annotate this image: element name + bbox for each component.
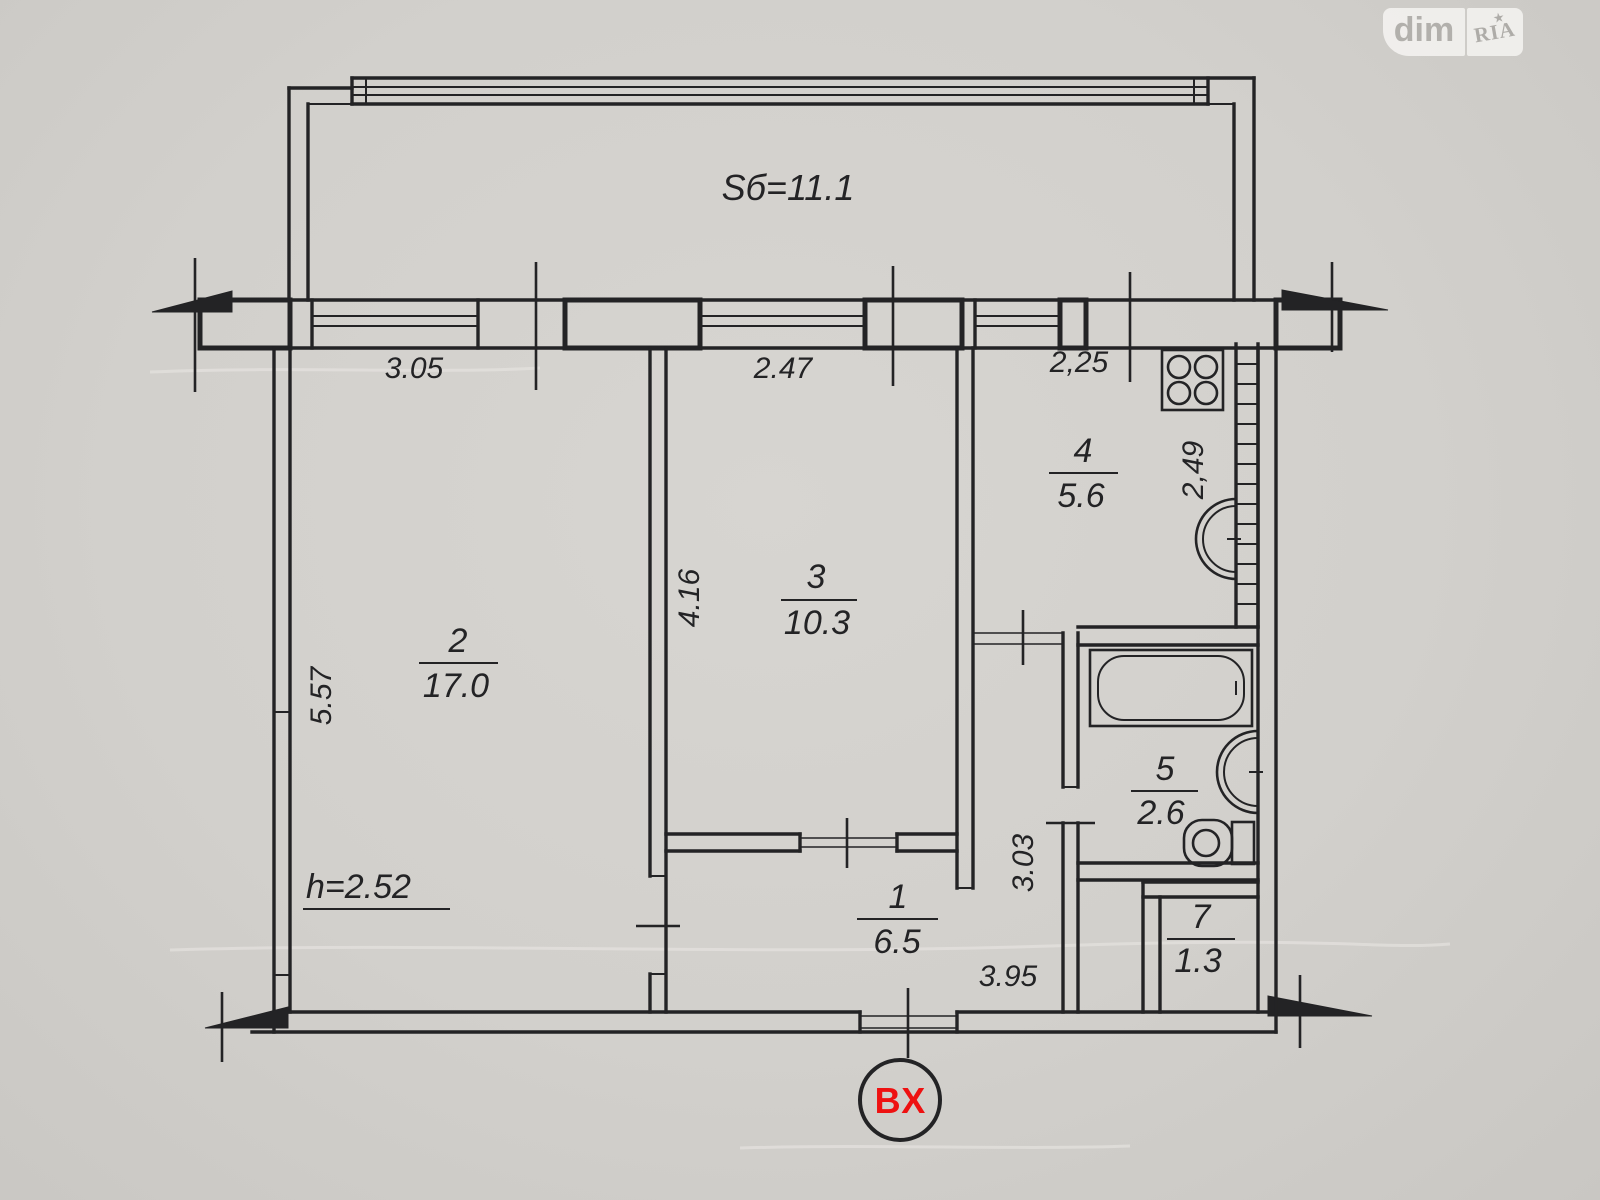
- section-arrow-bottom-left: [205, 1007, 288, 1028]
- wall-living-hall: [636, 348, 680, 1012]
- toilet-icon: [1184, 820, 1254, 866]
- room-living: 2 17.0 5.57 h=2.52: [304, 622, 497, 909]
- room-storage-area: 1.3: [1174, 942, 1221, 980]
- ceiling-height-label: h=2.52: [306, 868, 411, 906]
- washbasin-icon: [1217, 731, 1262, 813]
- dim-top-middle: 2.47: [753, 352, 814, 385]
- room-bedroom-number: 3: [807, 558, 826, 596]
- room-storage: 7 1.3: [1143, 882, 1258, 1012]
- entrance-mark: ВХ: [860, 1060, 940, 1140]
- bathtub-icon: [1090, 650, 1252, 726]
- kitchen-sink-icon: [1196, 499, 1240, 579]
- wall-pier: [1060, 300, 1086, 348]
- watermark-ria-text: RIA: [1472, 16, 1517, 48]
- room-bathroom: 5 2.6: [1046, 627, 1262, 1012]
- floor-plan-photo: Sб=11.1: [0, 0, 1600, 1200]
- room-bathroom-area: 2.6: [1136, 794, 1184, 832]
- dim-ria-watermark: dim ★ RIA: [1383, 8, 1523, 56]
- section-arrow-bottom-right: [1268, 996, 1372, 1016]
- entrance-label: ВХ: [875, 1080, 928, 1121]
- dim-bottom: 3.95: [979, 960, 1038, 993]
- dim-top-right: 2,25: [1049, 346, 1109, 379]
- room-hallway-area: 6.5: [873, 923, 920, 961]
- kitchen-doorway: [973, 610, 1063, 665]
- dim-hall-vertical: 3.03: [1007, 833, 1040, 892]
- wall-pier: [865, 300, 962, 348]
- section-arrow-top-right: [1282, 290, 1388, 310]
- window-living-room: [312, 300, 478, 348]
- floor-plan-drawing: Sб=11.1: [0, 0, 1600, 1200]
- dim-left-wall: 5.57: [305, 665, 338, 725]
- dim-top-left: 3.05: [385, 352, 444, 385]
- dim-kitchen-right: 2,49: [1177, 440, 1210, 500]
- stove-icon: [1162, 350, 1223, 410]
- room-bathroom-number: 5: [1156, 750, 1175, 788]
- room-storage-number: 7: [1192, 898, 1212, 936]
- room-hallway: 1 6.5 3.95 3.03: [858, 833, 1040, 993]
- watermark-dim-text: dim: [1394, 13, 1454, 51]
- watermark-ria: ★ RIA: [1467, 8, 1523, 56]
- room-living-number: 2: [448, 622, 468, 660]
- dim-bedroom-left: 4.16: [673, 568, 706, 627]
- room-hallway-number: 1: [889, 878, 908, 916]
- balcony-left-wall: [289, 88, 352, 300]
- window-kitchen: [975, 300, 1060, 348]
- window-bedroom: [700, 300, 865, 348]
- section-arrow-top-left: [152, 291, 232, 312]
- watermark-dim: dim: [1383, 8, 1465, 56]
- room-kitchen-area: 5.6: [1057, 477, 1104, 515]
- ventilation-shaft: [1236, 344, 1258, 627]
- room-kitchen-number: 4: [1074, 432, 1093, 470]
- room-kitchen: 4 5.6 2,49: [973, 344, 1258, 665]
- balcony-railing: [352, 78, 1254, 104]
- wall-pier: [565, 300, 700, 348]
- room-bedroom-area: 10.3: [784, 604, 850, 642]
- bedroom-doorway: [666, 818, 957, 868]
- room-bedroom: 3 10.3 4.16: [666, 348, 973, 888]
- balcony-area-label: Sб=11.1: [722, 167, 855, 208]
- balcony-right-wall: [1208, 78, 1254, 300]
- balcony: Sб=11.1: [289, 78, 1254, 300]
- exterior-top-wall: 3.05 2.47 2,25: [152, 258, 1388, 392]
- room-living-area: 17.0: [423, 667, 489, 705]
